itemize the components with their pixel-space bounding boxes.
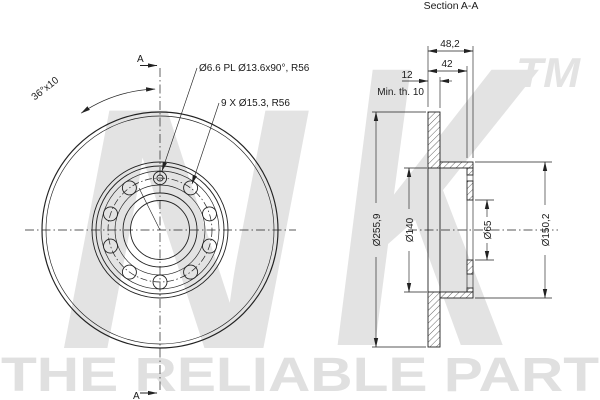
dim-total-width-label: 48,2 bbox=[440, 39, 460, 50]
dim-hat-diameter-label: Ø140 bbox=[405, 217, 416, 242]
section-letter-bottom: A bbox=[133, 391, 140, 400]
flange-segment bbox=[467, 181, 473, 200]
angle-dimension-label: 36°x10 bbox=[30, 75, 62, 103]
dim-hat-depth-label: 42 bbox=[441, 59, 453, 70]
brake-disc-technical-drawing: N K TM THE RELIABLE PART bbox=[0, 0, 600, 400]
bolt-holes-note: 9 X Ø15.3, R56 bbox=[221, 98, 290, 109]
trademark-symbol: TM bbox=[516, 49, 581, 96]
flange-segment bbox=[467, 260, 473, 274]
dim-flange-diameter-label: Ø150,2 bbox=[541, 213, 552, 246]
min-thickness-note: Min. th. 10 bbox=[377, 87, 424, 98]
section-view-title: Section A-A bbox=[424, 0, 479, 12]
dim-outer-diameter-label: Ø255,9 bbox=[372, 213, 383, 246]
watermark-tagline: THE RELIABLE PART bbox=[1, 349, 599, 400]
hat-wall-bottom bbox=[440, 292, 473, 298]
small-hole-note: Ø6.6 PL Ø13.6x90°, R56 bbox=[199, 63, 310, 74]
section-letter-top: A bbox=[137, 54, 144, 65]
drawing-canvas: N K TM THE RELIABLE PART bbox=[0, 0, 600, 400]
flange-segment bbox=[467, 168, 473, 175]
hat-wall-top bbox=[440, 162, 473, 168]
friction-ring-top bbox=[428, 112, 440, 168]
friction-ring-bottom bbox=[428, 292, 440, 347]
watermark: N K TM THE RELIABLE PART bbox=[1, 0, 599, 400]
dim-bore-diameter-label: Ø65 bbox=[483, 220, 494, 239]
flange-segment bbox=[467, 288, 473, 292]
dim-disc-thickness-label: 12 bbox=[401, 70, 413, 81]
